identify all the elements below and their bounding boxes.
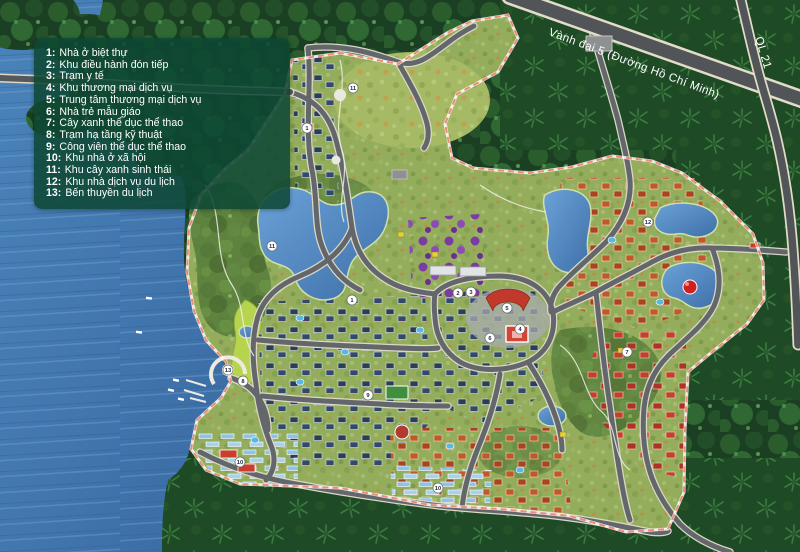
parking-northwest xyxy=(392,170,407,179)
marker-number: 2 xyxy=(456,291,459,297)
legend-item: 11:Khu cây xanh sinh thái xyxy=(46,165,278,177)
legend-item-label: Nhà ở biệt thự xyxy=(59,48,127,60)
marker-number: 10 xyxy=(435,486,441,492)
legend-item-label: Trạm hạ tầng kỹ thuật xyxy=(59,130,162,142)
legend-item-number: 1: xyxy=(46,48,55,60)
legend-item: 1:Nhà ở biệt thự xyxy=(46,48,278,60)
legend-panel: 1:Nhà ở biệt thự 2:Khu điều hành đón tiế… xyxy=(34,38,290,209)
sports-field xyxy=(386,386,408,399)
master-plan-map: Vành đai 5 (Đường Hồ Chí Minh) QL 21 1 1… xyxy=(0,0,800,552)
lake-feature xyxy=(683,280,697,294)
tourism-service-building xyxy=(220,450,237,458)
trail-node xyxy=(332,156,341,165)
legend-item-number: 8: xyxy=(46,130,55,142)
sports-track xyxy=(395,425,409,439)
marker-number: 13 xyxy=(225,368,232,374)
service-building xyxy=(430,266,456,275)
legend-item-label: Khu cây xanh sinh thái xyxy=(65,165,172,177)
marker-number: 7 xyxy=(625,350,628,356)
legend-item: 5:Trung tâm thương mại dịch vụ xyxy=(46,95,278,107)
marker-number: 10 xyxy=(237,460,243,466)
legend-item-number: 11: xyxy=(46,165,61,177)
legend-item-label: Trung tâm thương mại dịch vụ xyxy=(59,95,201,107)
trail-node xyxy=(334,89,346,101)
marker-number: 11 xyxy=(350,86,357,92)
legend-item-number: 13: xyxy=(46,188,61,200)
legend-item-label: Bến thuyền du lịch xyxy=(65,188,152,200)
marker-number: 12 xyxy=(645,220,651,226)
marker-number: 11 xyxy=(269,244,276,250)
service-building xyxy=(460,267,486,276)
legend-item: 13:Bến thuyền du lịch xyxy=(46,188,278,200)
legend-item-number: 5: xyxy=(46,95,55,107)
legend-item: 8:Trạm hạ tầng kỹ thuật xyxy=(46,130,278,142)
